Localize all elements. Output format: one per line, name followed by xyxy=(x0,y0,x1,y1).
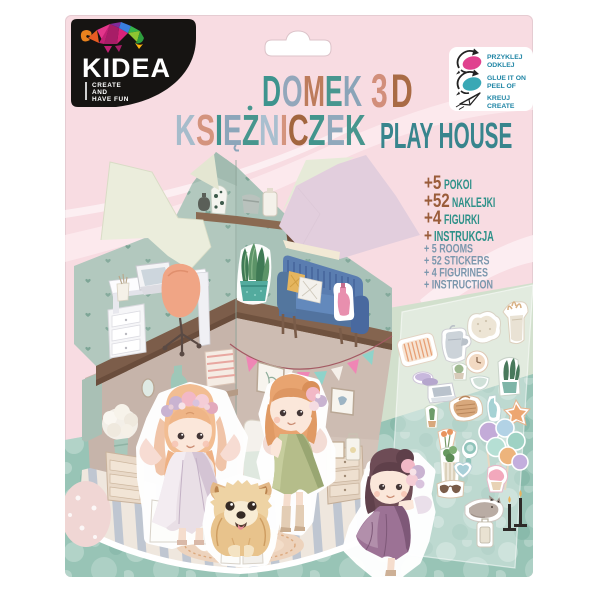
svg-text:S: S xyxy=(196,105,215,155)
svg-text:KIDEA: KIDEA xyxy=(82,53,171,83)
svg-text:+4: +4 xyxy=(424,206,442,228)
svg-text:KREUJ: KREUJ xyxy=(487,95,510,102)
svg-text:+ INSTRUCTION: + INSTRUCTION xyxy=(424,279,493,291)
svg-text:HAVE FUN: HAVE FUN xyxy=(92,96,129,103)
svg-text:3: 3 xyxy=(371,65,388,117)
svg-text:K: K xyxy=(345,105,366,155)
svg-text:D: D xyxy=(391,65,413,117)
svg-text:+ 4 FIGURINES: + 4 FIGURINES xyxy=(424,267,488,279)
svg-text:E: E xyxy=(223,105,242,155)
svg-text:INSTRUKCJA: INSTRUKCJA xyxy=(434,228,494,245)
svg-text:E: E xyxy=(326,105,345,155)
svg-text:GLUE IT ON: GLUE IT ON xyxy=(487,75,526,82)
svg-text:+ 52 STICKERS: + 52 STICKERS xyxy=(424,255,489,267)
svg-text:PEEL OF: PEEL OF xyxy=(487,83,516,90)
svg-text:I: I xyxy=(280,105,288,155)
svg-text:ODKLEJ: ODKLEJ xyxy=(487,62,515,69)
svg-text:FIGURKI: FIGURKI xyxy=(444,212,480,228)
svg-text:+ 5 ROOMS: + 5 ROOMS xyxy=(424,243,473,255)
svg-text:NAKLEJKI: NAKLEJKI xyxy=(452,195,495,211)
svg-text:N: N xyxy=(259,105,280,155)
svg-text:I: I xyxy=(215,105,223,155)
svg-text:CREATE: CREATE xyxy=(487,103,515,110)
svg-text:Z: Z xyxy=(308,105,325,155)
svg-text:PRZYKLEJ: PRZYKLEJ xyxy=(487,54,523,61)
svg-text:K: K xyxy=(175,105,196,155)
svg-text:C: C xyxy=(288,105,309,155)
svg-text:Z: Z xyxy=(242,105,259,155)
svg-text:CREATE: CREATE xyxy=(92,82,122,89)
svg-text:AND: AND xyxy=(92,89,108,96)
svg-text:PLAY HOUSE: PLAY HOUSE xyxy=(380,116,512,156)
